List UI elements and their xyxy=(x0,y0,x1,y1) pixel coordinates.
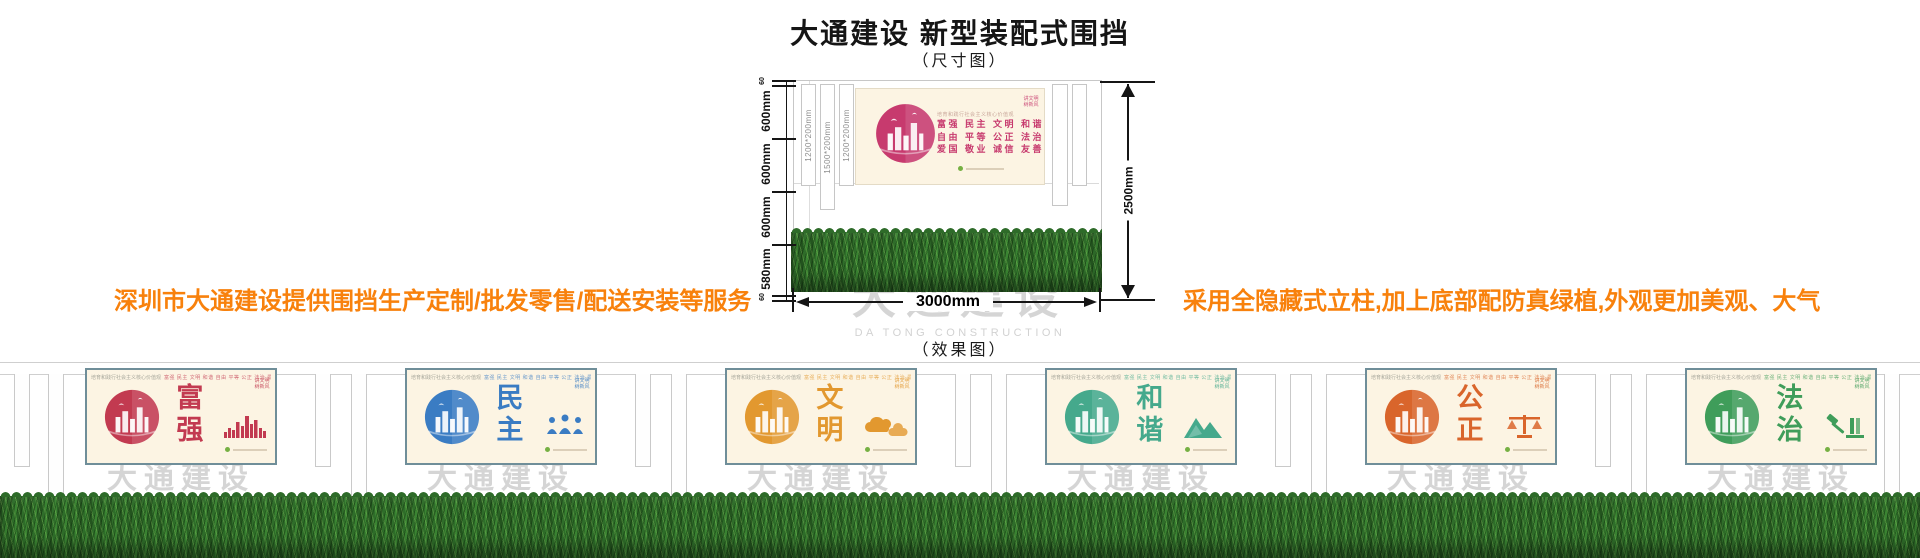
header-intro: 培育和践行社会主义核心价值观 xyxy=(411,375,481,381)
dim-tick xyxy=(772,85,796,87)
panel-corner-badge: 讲文明 树新风 xyxy=(1853,378,1871,390)
panel-footer xyxy=(545,447,587,452)
board-footer xyxy=(958,166,1004,171)
fence-post xyxy=(635,374,651,467)
service-note-right: 采用全隐藏式立柱,加上底部配防真绿植,外观更加美观、大气 xyxy=(1183,281,1820,316)
logo-dot-icon xyxy=(1825,447,1830,452)
grass-hedge-strip xyxy=(0,496,1920,558)
panel-value-word: 公正 xyxy=(1453,383,1481,447)
panel-header-line: 培育和践行社会主义核心价值观富强 民主 文明 和谐 自由 平等 公正 法治 爱国… xyxy=(731,374,911,381)
logo-dot-icon xyxy=(545,447,550,452)
arrow-up-icon xyxy=(1121,84,1135,97)
dim-60-top: 60 xyxy=(757,71,767,91)
dim-tick-top-right xyxy=(1100,81,1155,83)
panel-value-word: 法治 xyxy=(1773,383,1801,447)
papercut-circle-illustration xyxy=(874,102,937,165)
effect-diagram-caption: （效果图） xyxy=(0,336,1920,360)
panel-corner-badge: 讲文明 树新风 xyxy=(1533,378,1551,390)
post-label: 1200*200mm xyxy=(842,109,851,162)
effect-panel-wenming: 培育和践行社会主义核心价值观富强 民主 文明 和谐 自由 平等 公正 法治 爱国… xyxy=(725,368,917,465)
panel-value-word: 富强 xyxy=(173,383,201,447)
core-values-board: 培育和践行社会主义核心价值观 富强 民主 文明 和谐 自由 平等 公正 法治 爱… xyxy=(855,88,1045,185)
dim-tick xyxy=(772,80,796,82)
fence-post xyxy=(991,374,1007,498)
dim-580: 580mm xyxy=(759,247,773,291)
fence-post xyxy=(351,374,367,498)
board-header-line: 培育和践行社会主义核心价值观 xyxy=(937,111,1041,118)
panel-corner-badge: 讲文明 树新风 xyxy=(1213,378,1231,390)
hedge-strip-diagram xyxy=(791,232,1102,292)
effect-panel-gongzheng: 培育和践行社会主义核心价值观富强 民主 文明 和谐 自由 平等 公正 法治 爱国… xyxy=(1365,368,1557,465)
logo-dot-icon xyxy=(1505,447,1510,452)
panel-footer xyxy=(1505,447,1547,452)
logo-dot-icon xyxy=(865,447,870,452)
effect-panel-fuqiang: 培育和践行社会主义核心价值观富强 民主 文明 和谐 自由 平等 公正 法治 爱国… xyxy=(85,368,277,465)
dim-tick xyxy=(772,191,796,193)
scales-motif-icon xyxy=(1502,412,1548,440)
panel-header-line: 培育和践行社会主义核心价值观富强 民主 文明 和谐 自由 平等 公正 法治 爱国… xyxy=(411,374,591,381)
papercut-circle-illustration xyxy=(103,388,161,446)
fence-post xyxy=(315,374,331,467)
fence-post-1500: 1500*200mm xyxy=(820,84,835,210)
header-intro: 培育和践行社会主义核心价值观 xyxy=(1051,375,1121,381)
fence-post xyxy=(1595,374,1611,467)
people-motif-icon xyxy=(542,412,588,440)
fence-post-right-a xyxy=(1052,84,1068,206)
panel-corner-badge: 讲文明 树新风 xyxy=(253,378,271,390)
header-intro: 培育和践行社会主义核心价值观 xyxy=(1371,375,1441,381)
effect-panel-hexie: 培育和践行社会主义核心价值观富强 民主 文明 和谐 自由 平等 公正 法治 爱国… xyxy=(1045,368,1237,465)
promo-sheet: 大通建设 新型装配式围挡 （尺寸图） （效果图） 深圳市大通建设提供围挡生产定制… xyxy=(0,0,1920,560)
dim-600-3: 600mm xyxy=(759,195,773,239)
panel-header-line: 培育和践行社会主义核心价值观富强 民主 文明 和谐 自由 平等 公正 法治 爱国… xyxy=(91,374,271,381)
fence-post-1200b: 1200*200mm xyxy=(839,84,854,186)
logo-dot-icon xyxy=(1185,447,1190,452)
dim-tick-bottom-right xyxy=(1100,299,1155,301)
dim-tick xyxy=(772,138,796,140)
panel-corner-badge: 讲文明 树新风 xyxy=(893,378,911,390)
post-label: 1500*200mm xyxy=(823,121,832,174)
slogan-line: 富强 民主 文明 和谐 xyxy=(937,118,1041,131)
arrow-left-icon xyxy=(796,297,809,307)
gavel-motif-icon xyxy=(1822,412,1868,440)
panel-footer xyxy=(1825,447,1867,452)
small-print-line xyxy=(233,449,267,451)
panel-header-line: 培育和践行社会主义核心价值观富强 民主 文明 和谐 自由 平等 公正 法治 爱国… xyxy=(1051,374,1231,381)
dim-600-1: 600mm xyxy=(759,89,773,133)
watermark-en: DA TONG CONSTRUCTION xyxy=(740,327,1180,339)
dim-total-width: 3000mm xyxy=(903,293,993,311)
post-label: 1200*200mm xyxy=(804,109,813,162)
service-note-left: 深圳市大通建设提供围挡生产定制/批发零售/配送安装等服务 xyxy=(114,281,751,316)
header-intro: 培育和践行社会主义核心价值观 xyxy=(91,375,161,381)
panel-footer xyxy=(865,447,907,452)
logo-dot-icon xyxy=(958,166,963,171)
header-intro: 培育和践行社会主义核心价值观 xyxy=(1691,375,1761,381)
header-intro: 培育和践行社会主义核心价值观 xyxy=(731,375,801,381)
papercut-circle-illustration xyxy=(1063,388,1121,446)
small-print-line xyxy=(1833,449,1867,451)
papercut-circle-illustration xyxy=(1703,388,1761,446)
dim-60-bottom: 60 xyxy=(757,287,767,307)
small-print-line xyxy=(1513,449,1547,451)
arrow-right-icon xyxy=(1084,297,1097,307)
arrow-down-icon xyxy=(1121,285,1135,298)
dim-end-bar-right xyxy=(1099,288,1101,312)
effect-panel-minzhu: 培育和践行社会主义核心价值观富强 民主 文明 和谐 自由 平等 公正 法治 爱国… xyxy=(405,368,597,465)
dim-tick xyxy=(772,244,796,246)
slogan-line: 自由 平等 公正 法治 xyxy=(937,131,1041,144)
panel-value-word: 民主 xyxy=(493,383,521,447)
fence-post xyxy=(955,374,971,467)
small-print-line xyxy=(966,168,1004,170)
dim-end-bar-left xyxy=(792,288,794,312)
dim-600-2: 600mm xyxy=(759,142,773,186)
panel-header-line: 培育和践行社会主义核心价值观富强 民主 文明 和谐 自由 平等 公正 法治 爱国… xyxy=(1371,374,1551,381)
panel-footer xyxy=(1185,447,1227,452)
small-print-line xyxy=(873,449,907,451)
fence-post xyxy=(671,374,687,498)
papercut-circle-illustration xyxy=(1383,388,1441,446)
panel-footer xyxy=(225,447,267,452)
papercut-circle-illustration xyxy=(743,388,801,446)
mountain-motif-icon xyxy=(1182,412,1228,440)
fence-post-right-b xyxy=(1072,84,1087,186)
size-diagram-caption: （尺寸图） xyxy=(0,47,1920,71)
panel-value-word: 文明 xyxy=(813,383,841,447)
clouds-motif-icon xyxy=(862,412,908,440)
slogan-line: 爱国 敬业 诚信 友善 xyxy=(937,143,1041,156)
small-print-line xyxy=(1193,449,1227,451)
fence-post xyxy=(1631,374,1647,498)
fence-post xyxy=(1311,374,1327,498)
fence-post xyxy=(1275,374,1291,467)
dim-total-height: 2500mm xyxy=(1121,161,1136,221)
board-corner-badge: 讲文明 树新风 xyxy=(1022,96,1040,108)
city-bars-motif-icon xyxy=(222,412,268,440)
logo-dot-icon xyxy=(225,447,230,452)
panel-header-line: 培育和践行社会主义核心价值观富强 民主 文明 和谐 自由 平等 公正 法治 爱国… xyxy=(1691,374,1871,381)
fence-post xyxy=(14,374,30,467)
fence-post-1200: 1200*200mm xyxy=(801,84,816,186)
effect-panel-fazhi: 培育和践行社会主义核心价值观富强 民主 文明 和谐 自由 平等 公正 法治 爱国… xyxy=(1685,368,1877,465)
fence-rail-top xyxy=(0,362,1920,363)
small-print-line xyxy=(553,449,587,451)
board-text-block: 培育和践行社会主义核心价值观 富强 民主 文明 和谐 自由 平等 公正 法治 爱… xyxy=(937,111,1041,156)
panel-corner-badge: 讲文明 树新风 xyxy=(573,378,591,390)
panel-value-word: 和谐 xyxy=(1133,383,1161,447)
papercut-circle-illustration xyxy=(423,388,481,446)
page-title: 大通建设 新型装配式围挡 xyxy=(0,12,1920,52)
